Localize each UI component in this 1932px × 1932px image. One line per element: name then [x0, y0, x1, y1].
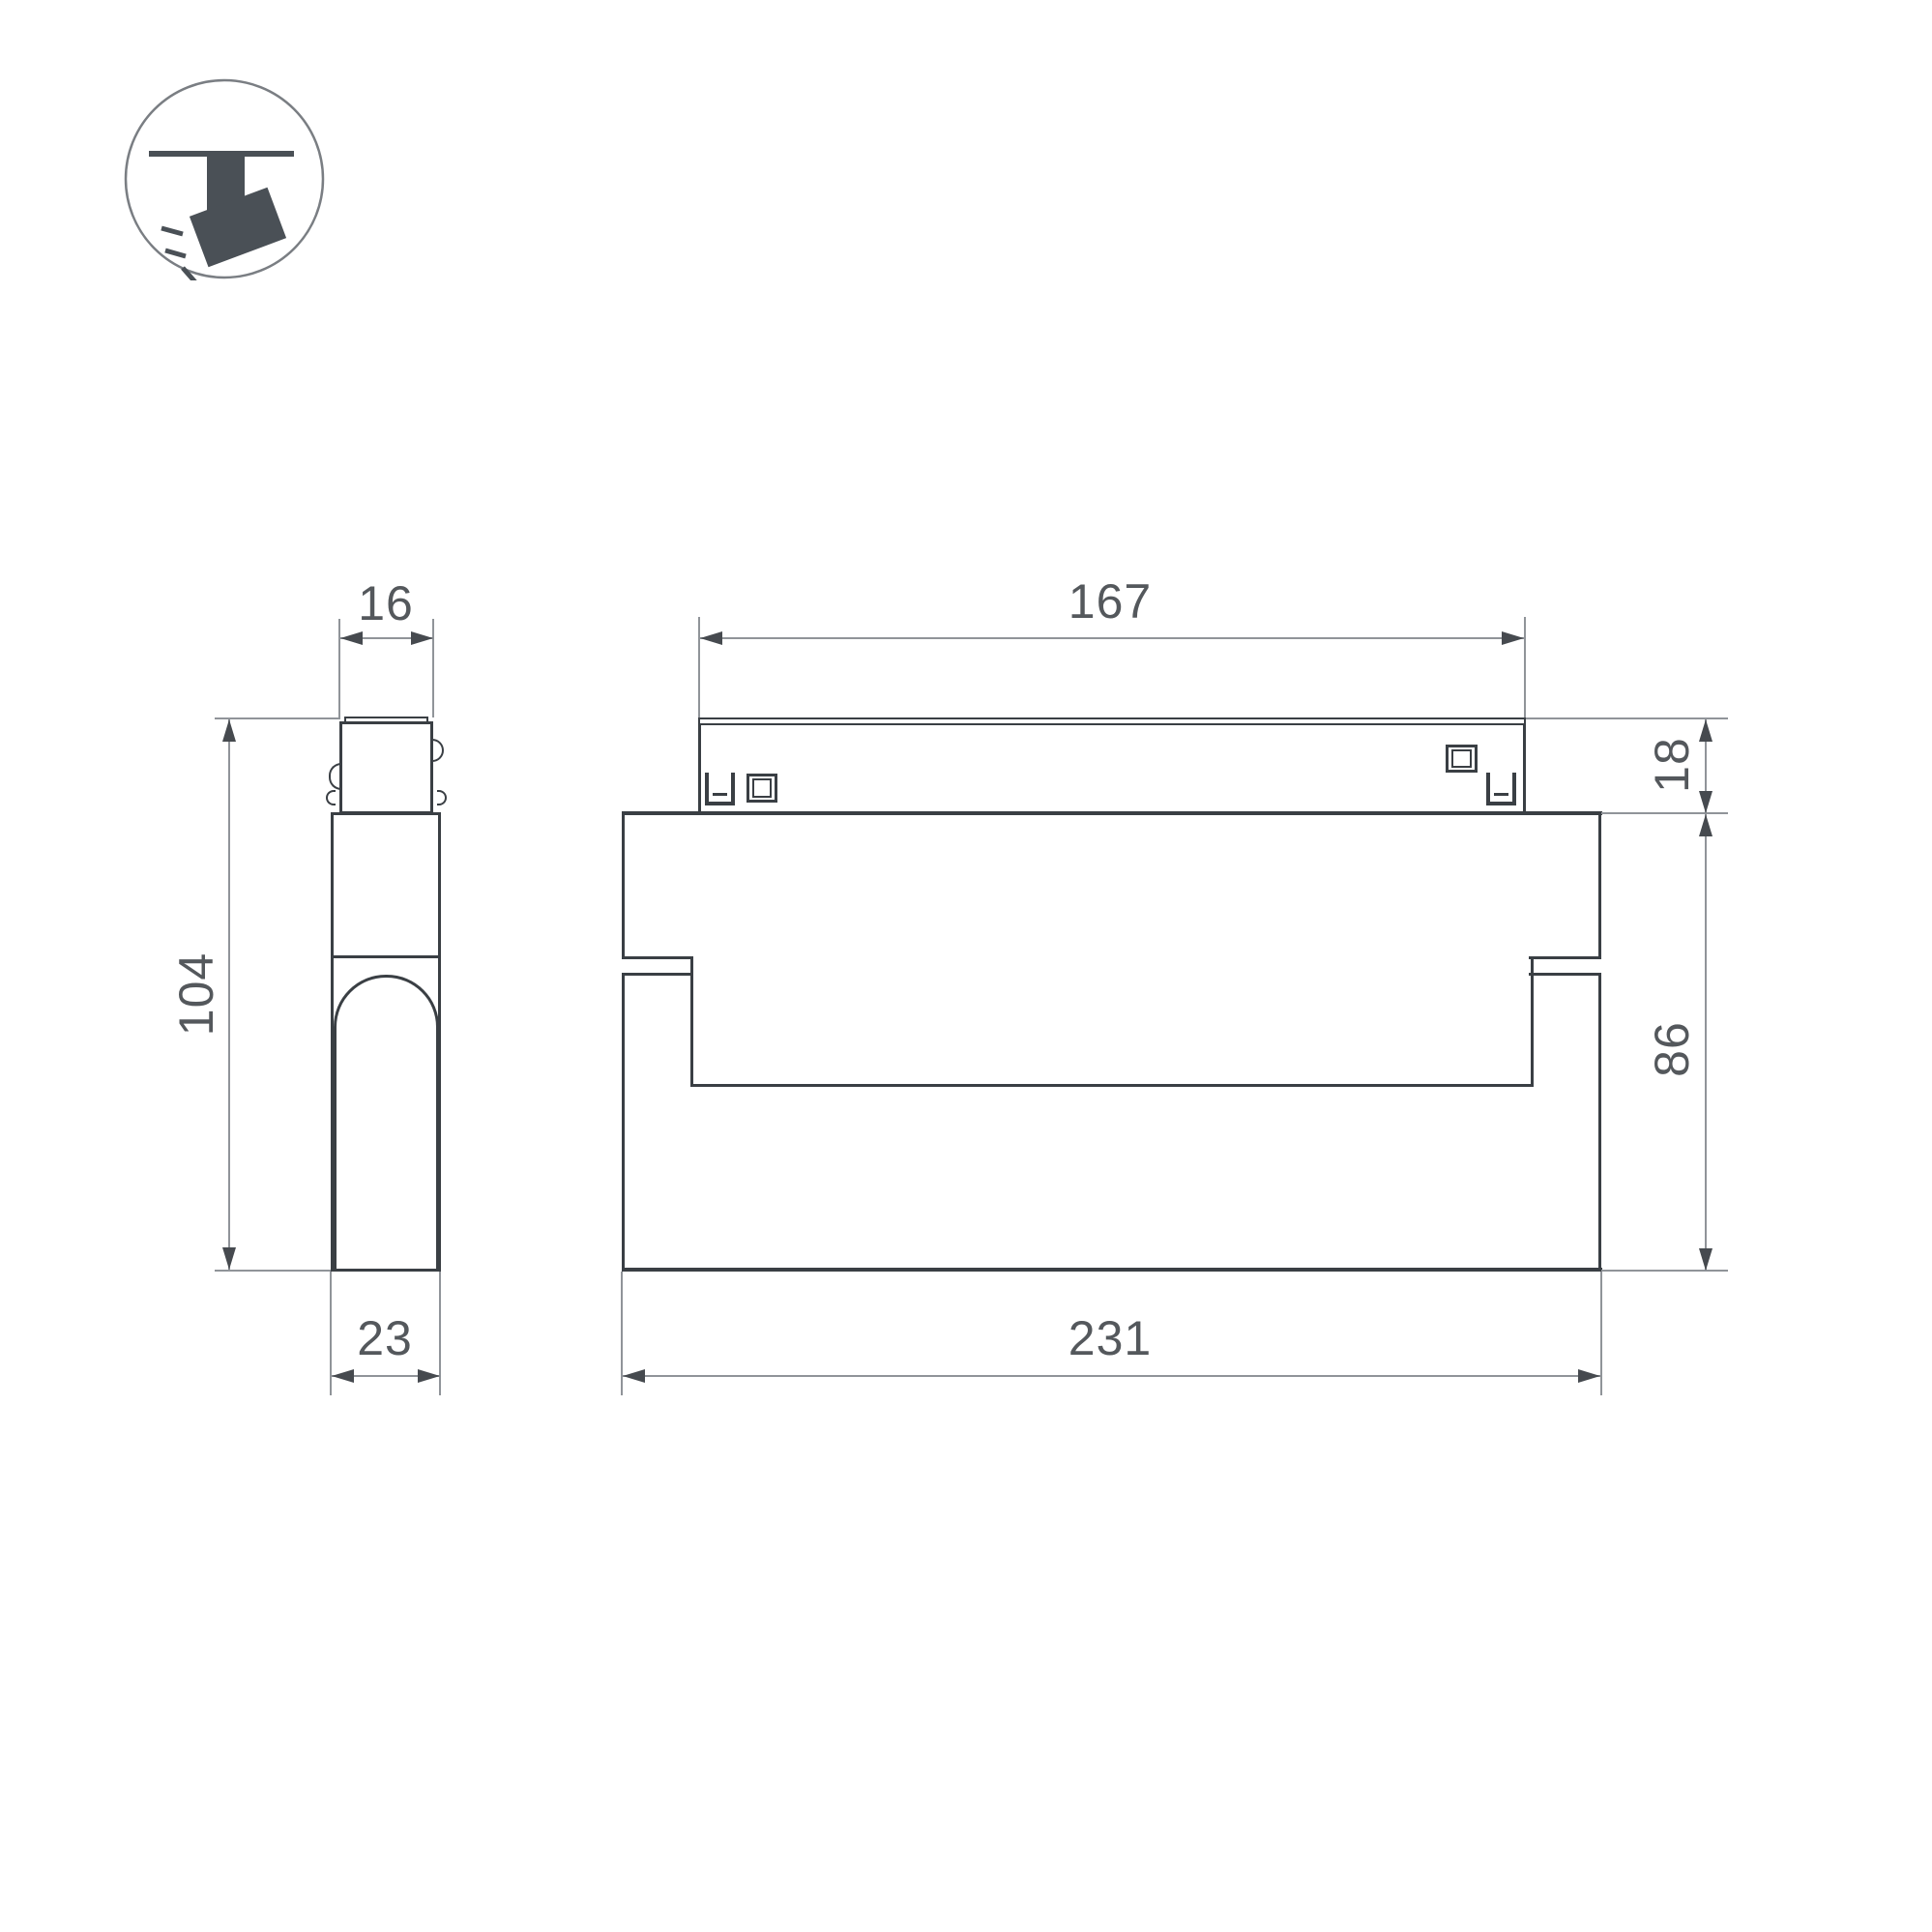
front-slot-right-bottom — [1529, 973, 1601, 976]
side-hook-left — [326, 790, 336, 805]
ext-line — [1600, 1272, 1602, 1395]
dim-label-23: 23 — [346, 1315, 424, 1361]
front-body-bottom — [622, 1268, 1602, 1272]
side-spring-clip-left — [329, 763, 341, 790]
technical-drawing-canvas: 16 104 23 167 18 — [0, 0, 1932, 1932]
side-track-adapter — [339, 721, 433, 814]
front-body-right-lower — [1598, 974, 1601, 1272]
front-contact-u-left — [705, 773, 735, 805]
front-body-left-upper — [622, 811, 625, 958]
arrowhead-right — [1502, 631, 1524, 645]
side-hook-right — [437, 790, 447, 805]
dim-label-104: 104 — [173, 941, 220, 1047]
front-adapter-right-edge — [1523, 723, 1526, 813]
dim-line — [228, 718, 230, 1271]
arrowhead-left — [700, 631, 722, 645]
front-body-left-lower — [622, 974, 625, 1272]
front-slot-right-top — [1529, 956, 1601, 959]
dim-label-167: 167 — [1062, 578, 1158, 625]
front-panel-right-edge — [1531, 956, 1534, 1087]
ext-line — [1524, 617, 1526, 717]
front-contact-u-right — [1486, 773, 1516, 805]
arrowhead-down — [222, 1247, 236, 1270]
dim-line — [699, 637, 1525, 639]
arrowhead-right — [418, 1369, 440, 1383]
track-spotlight-icon — [123, 77, 326, 280]
front-contact-square-left-inner — [752, 778, 772, 798]
arrowhead-up — [1699, 719, 1712, 742]
arrowhead-left — [340, 631, 363, 645]
side-head-dome — [334, 975, 439, 1271]
front-slot-left-top — [622, 956, 693, 959]
arrowhead-right — [1578, 1369, 1600, 1383]
dim-label-231: 231 — [1062, 1315, 1158, 1361]
front-contact-u-right-inner — [1494, 793, 1508, 796]
ext-line — [1526, 717, 1728, 719]
front-panel-bottom-edge — [690, 1084, 1534, 1087]
front-panel-left-edge — [690, 956, 693, 1087]
front-track-plate — [698, 717, 1526, 725]
dim-label-16: 16 — [347, 580, 424, 627]
side-spring-clip-right — [432, 739, 444, 762]
front-slot-left-bottom — [622, 973, 693, 976]
front-contact-u-left-inner — [713, 793, 727, 796]
arrowhead-down — [1699, 1248, 1712, 1271]
dim-line — [622, 1375, 1601, 1377]
front-contact-square-right-inner — [1451, 749, 1472, 768]
front-body-right-upper — [1598, 811, 1601, 958]
side-body-split-line — [331, 955, 441, 958]
front-adapter-left-edge — [698, 723, 701, 813]
arrowhead-right — [411, 631, 433, 645]
arrowhead-left — [332, 1369, 354, 1383]
arrowhead-up — [222, 719, 236, 742]
ext-line — [215, 1270, 331, 1272]
dim-label-86: 86 — [1649, 996, 1695, 1102]
front-body-top — [622, 811, 1602, 815]
arrowhead-up — [1699, 814, 1712, 836]
dim-line — [1705, 813, 1707, 1272]
arrowhead-down — [1699, 791, 1712, 813]
dim-label-18: 18 — [1649, 712, 1695, 818]
arrowhead-left — [623, 1369, 645, 1383]
